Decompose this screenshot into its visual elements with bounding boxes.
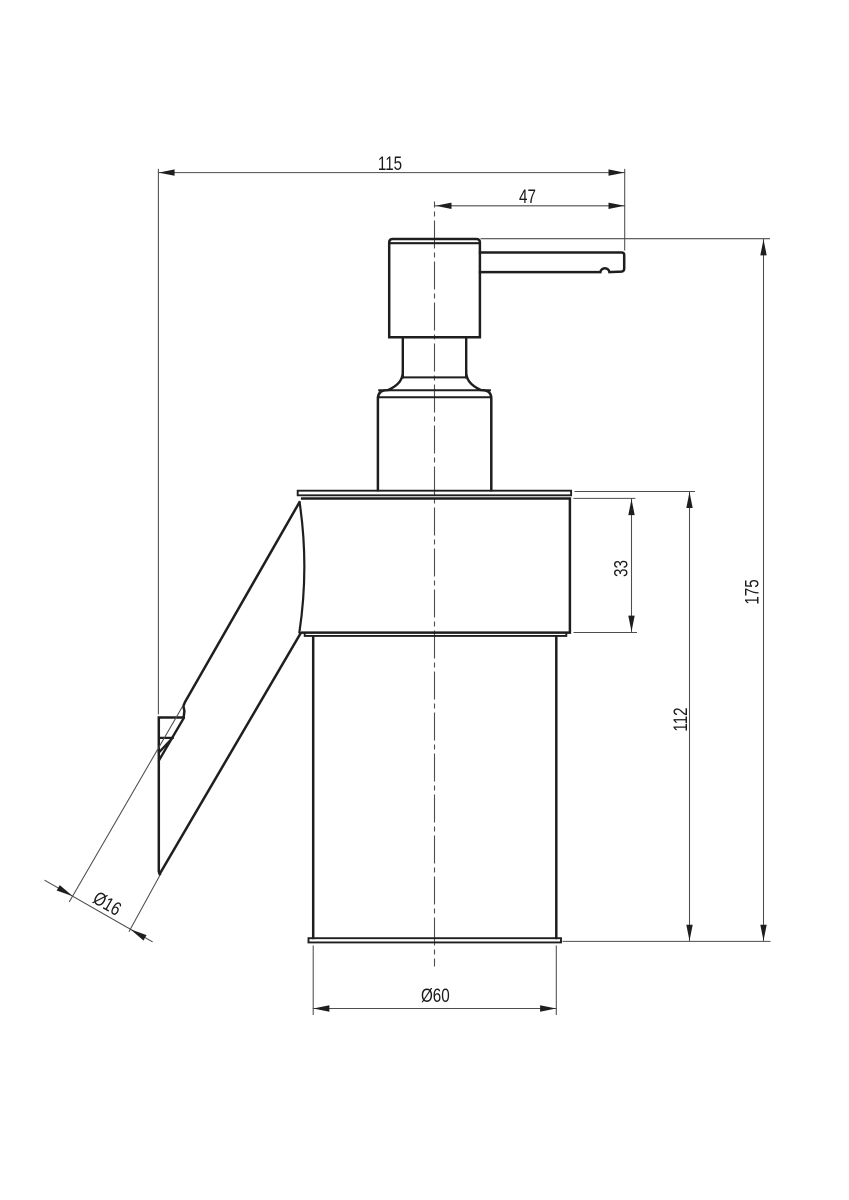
svg-text:175: 175	[741, 579, 763, 604]
svg-text:Ø60: Ø60	[421, 984, 450, 1006]
svg-text:112: 112	[669, 707, 691, 731]
svg-text:47: 47	[519, 186, 536, 208]
svg-text:115: 115	[378, 153, 402, 175]
svg-text:33: 33	[610, 560, 632, 577]
